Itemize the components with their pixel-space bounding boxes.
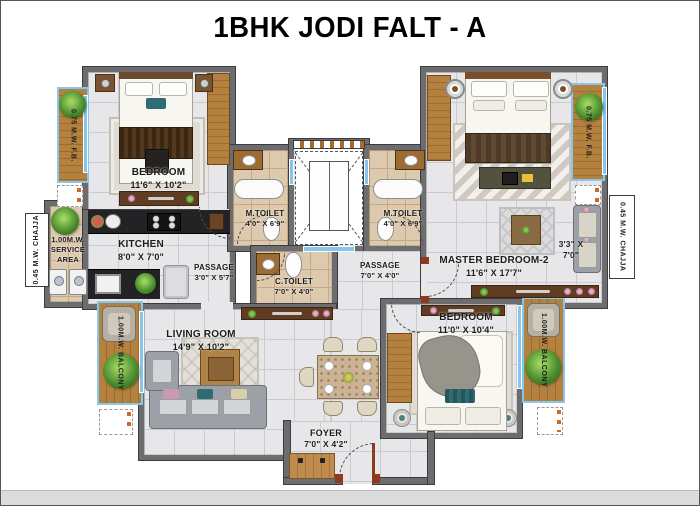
duct-ticks (127, 412, 131, 432)
bathtub (234, 179, 284, 199)
label-living-room: LIVING ROOM 14'9" X 10'2" (141, 329, 261, 353)
centerpiece (343, 372, 354, 383)
flower-decor (564, 288, 571, 295)
duct-box (575, 185, 601, 205)
pillow (473, 100, 505, 111)
label-kitchen: KITCHEN 8'0" X 7'0" (96, 239, 186, 263)
lift-cabin (309, 161, 349, 231)
flower-decor (312, 310, 319, 317)
dresser-slot (148, 197, 174, 200)
plate (362, 361, 372, 371)
plant-decor (248, 310, 256, 318)
lift-doors (303, 246, 355, 252)
lamp (560, 86, 566, 92)
balcony-right-label: 1.00M.W. BALCONY (522, 297, 565, 403)
flower-bed-right-label: 0.75 M.W. F.B. (571, 83, 605, 181)
coffee-table (200, 349, 240, 387)
duct-ticks (595, 188, 599, 202)
footer-band (1, 490, 699, 506)
notebook (522, 174, 533, 182)
round-side-table (553, 79, 573, 99)
label-master-bedroom-2: MASTER BEDROOM-2 11'6" X 17'7" (424, 255, 564, 279)
duct-box (99, 409, 133, 435)
armchair (145, 351, 179, 391)
label-passage-right: PASSAGE 7'0" X 4'0" (347, 261, 413, 280)
armchair-cushion (152, 359, 172, 383)
basin (404, 155, 418, 166)
pillow (465, 407, 501, 425)
accent-pillow (146, 98, 166, 109)
nightstand-round (393, 409, 411, 427)
accent-pillow (197, 389, 213, 399)
duct-box (57, 185, 83, 207)
kitchen-sink-round (105, 214, 121, 229)
sofa-cushion (578, 212, 597, 238)
plant-decor (186, 195, 194, 203)
label-m-toilet-left: M.TOILET 4'0" X 6'9" (235, 209, 295, 228)
label-passage-left: PASSAGE 3'0" X 5'7" (184, 263, 244, 282)
lamp (200, 79, 209, 88)
window-glass (364, 159, 369, 185)
lamp (101, 79, 110, 88)
bed-headboard (465, 72, 551, 79)
kitchen-sink (95, 274, 121, 294)
plan-title: 1BHK JODI FALT - A (18, 12, 681, 45)
sofa-cushion (191, 399, 219, 415)
stove (147, 213, 181, 231)
door-jamb (335, 474, 343, 483)
dining-chair (323, 337, 343, 352)
wardrobe (387, 333, 412, 403)
sofa-cushion (223, 399, 251, 415)
lift-hatch-band (293, 140, 365, 149)
dresser (119, 191, 199, 206)
door-jamb (421, 296, 429, 303)
chajja-right-label: 0.45 M.W. CHAJJA (609, 195, 635, 279)
accent-pillow (445, 389, 475, 403)
vanity (395, 150, 425, 170)
pillow (471, 81, 507, 97)
plant (51, 207, 79, 235)
nightstand (195, 74, 213, 92)
washing-machine (69, 269, 87, 295)
duct-box (537, 407, 563, 435)
dining-chair (323, 401, 343, 416)
label-bedroom-left: BEDROOM 11'6" X 10'2" (101, 167, 216, 191)
washing-machine (49, 269, 67, 295)
coffee-table-tray (208, 357, 234, 381)
pillow (425, 407, 461, 425)
wall-segment (428, 432, 434, 484)
bench-knob (298, 458, 303, 463)
label-m-toilet-right: M.TOILET 4'0" X 6'9" (373, 209, 433, 228)
pillow (513, 81, 549, 97)
nightstand (95, 74, 115, 92)
toilet-wc (285, 252, 302, 278)
laptop (502, 172, 518, 185)
plant-decor (522, 226, 530, 234)
bed-blanket (465, 133, 551, 163)
balcony-left-label: 1.00M.W. BALCONY (97, 301, 143, 405)
flower-decor (588, 288, 595, 295)
dining-chair (299, 367, 314, 387)
door-opening (201, 302, 233, 310)
side-table (511, 215, 541, 245)
floorplan-canvas: 1BHK JODI FALT - A 0.75 M.W. F.B. 0.45 M… (0, 0, 700, 506)
label-bedroom-right: BEDROOM 11'0" X 10'4" (409, 312, 523, 336)
basin (242, 155, 256, 166)
vanity (233, 150, 263, 170)
plate (362, 384, 372, 394)
flower-decor (128, 195, 135, 202)
label-sitout-nook: 3'3" X 7'0" (545, 239, 597, 260)
plate (324, 384, 334, 394)
bathtub (373, 179, 423, 199)
door-jamb (372, 474, 380, 483)
sideboard (241, 307, 333, 320)
bench-knob (320, 458, 325, 463)
veggie-plate (91, 215, 104, 228)
sofa-cushion (159, 399, 187, 415)
pillow (515, 100, 547, 111)
flower-decor (323, 310, 330, 317)
plant (135, 273, 156, 294)
sideboard-slot (516, 290, 550, 293)
plant-decor (480, 288, 488, 296)
pillow (125, 82, 153, 96)
sideboard-slot (272, 312, 302, 315)
dining-chair (357, 337, 377, 352)
bed-bench (479, 167, 551, 189)
round-side-table (445, 79, 465, 99)
flower-decor (576, 288, 583, 295)
plate (324, 361, 334, 371)
washer-door (74, 276, 84, 286)
duct-ticks (77, 188, 81, 204)
label-foyer: FOYER 7'0" X 4'2" (291, 428, 361, 450)
accent-pillow (231, 389, 247, 399)
flower-bed-left-label: 0.75 M.W. F.B. (57, 87, 89, 183)
dining-chair (357, 401, 377, 416)
washer-door (54, 276, 64, 286)
window-glass (289, 159, 294, 185)
shoe-bench (289, 453, 335, 479)
duct-ticks (557, 410, 561, 432)
lamp (399, 415, 405, 421)
bed-headboard (119, 72, 193, 79)
dining-table (317, 355, 379, 399)
service-area-label: 1.00M.W. SERVICE AREA (43, 235, 93, 265)
pillow (159, 82, 187, 96)
wall-segment (373, 478, 434, 484)
label-c-toilet: C.TOILET 7'0" X 4'0" (258, 277, 330, 296)
lamp (452, 86, 458, 92)
accent-pillow (163, 389, 179, 399)
